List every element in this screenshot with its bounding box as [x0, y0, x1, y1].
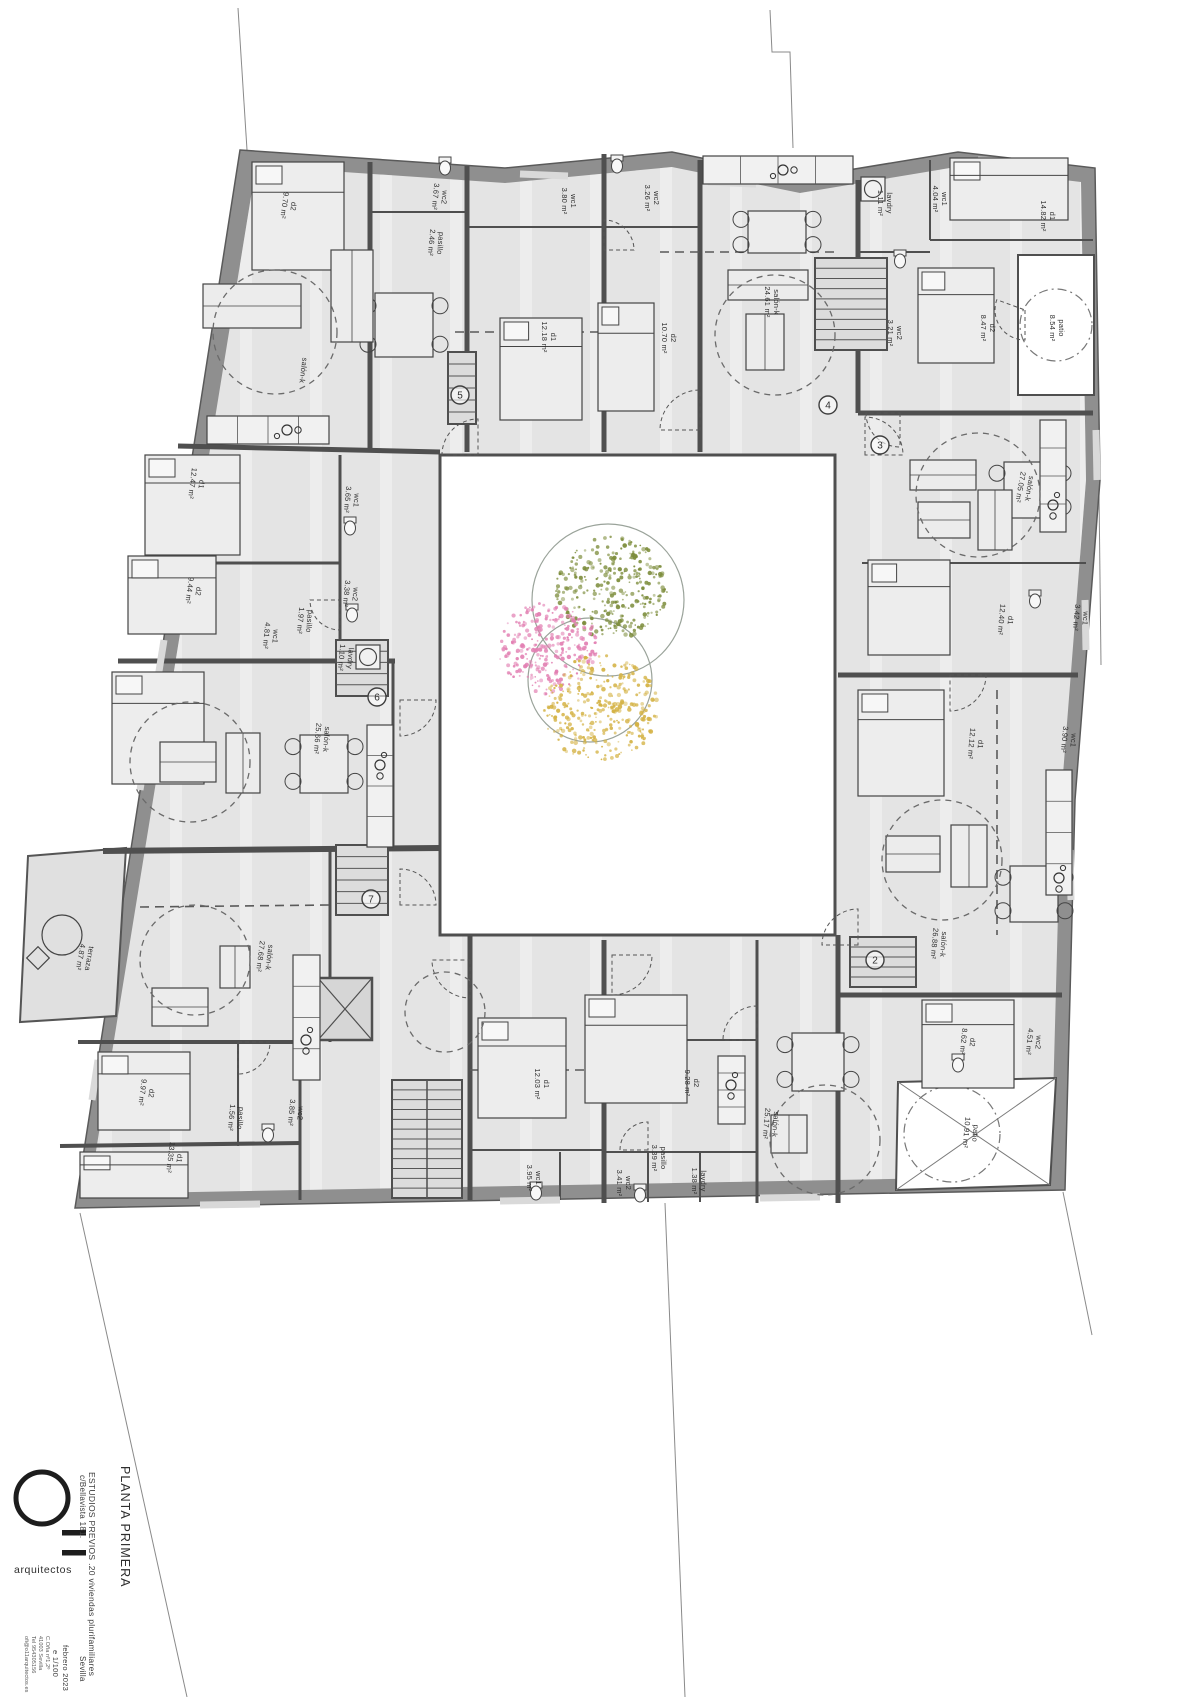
svg-text:3.95 m²: 3.95 m²: [525, 1165, 534, 1192]
bed: [858, 690, 944, 796]
room-label: salón-k25.17 m²: [761, 1108, 782, 1141]
toilet: [344, 517, 356, 535]
toilet: [634, 1184, 646, 1202]
svg-text:5: 5: [457, 391, 463, 402]
sofa: [886, 836, 940, 872]
svg-text:4: 4: [825, 401, 831, 412]
bed: [598, 303, 654, 411]
svg-text:lavdry: lavdry: [699, 1170, 708, 1191]
svg-text:wc1: wc1: [940, 191, 949, 206]
svg-text:24.61 m²: 24.61 m²: [763, 286, 772, 317]
svg-text:1.11 m²: 1.11 m²: [876, 190, 885, 217]
kitchen-counter: [207, 416, 329, 444]
room-label: salón-k27.68 m²: [254, 940, 276, 973]
drawing-title: PLANTA PRIMERA: [118, 1466, 132, 1587]
sofa: [918, 502, 970, 538]
svg-text:3.41 m²: 3.41 m²: [615, 1170, 624, 1197]
svg-text:8.47 m²: 8.47 m²: [979, 315, 988, 342]
svg-text:d2: d2: [988, 324, 997, 333]
svg-text:12.03 m²: 12.03 m²: [533, 1068, 542, 1099]
svg-text:4.04 m²: 4.04 m²: [931, 186, 940, 213]
toilet: [611, 155, 623, 173]
sofa: [203, 284, 301, 328]
kitchen-counter: [293, 955, 320, 1080]
drawing-date: febrero 2023: [61, 1645, 70, 1691]
svg-text:wc1: wc1: [569, 193, 578, 208]
unit-number-badge: 5: [451, 386, 469, 404]
sofa: [910, 460, 976, 490]
project-title: ESTUDIOS PREVIOS .20 viviendas plurifami…: [87, 1472, 97, 1676]
office-address-line: C.Oña nº1,2º: [44, 1636, 50, 1669]
svg-text:d2: d2: [669, 334, 678, 343]
bed: [868, 560, 950, 655]
sofa: [160, 742, 216, 782]
bed: [478, 1018, 566, 1118]
svg-text:3.21 m²: 3.21 m²: [886, 320, 895, 347]
logo-subtitle: arquitectos: [14, 1564, 72, 1576]
unit-number-badge: 3: [871, 436, 889, 454]
svg-text:wc2: wc2: [652, 190, 661, 205]
sofa: [978, 490, 1012, 550]
svg-text:d1: d1: [549, 333, 558, 342]
office-city-line: 41003 Sevilla: [37, 1636, 43, 1670]
svg-text:3: 3: [877, 441, 883, 452]
floor-plan-sheet: d29.70 m²wc23.67 m²pasillo2.46 m²salón-k…: [0, 0, 1200, 1697]
kitchen-counter: [367, 725, 393, 847]
bed: [585, 995, 687, 1103]
staircase: [336, 845, 388, 915]
room-label: salón-k26.88 m²: [929, 928, 950, 961]
svg-text:wc2: wc2: [895, 325, 904, 340]
svg-text:2: 2: [872, 956, 878, 967]
sofa: [951, 825, 987, 887]
svg-text:lavdry: lavdry: [885, 192, 894, 213]
drawing-scale: e 1/100: [51, 1650, 60, 1677]
svg-text:6: 6: [374, 693, 380, 704]
sofa: [226, 733, 260, 793]
sofa: [152, 988, 208, 1026]
elevator-shaft: [318, 978, 372, 1040]
sofa: [746, 314, 784, 370]
kitchen-counter: [703, 156, 853, 184]
kitchen-counter: [1040, 420, 1066, 532]
svg-text:wc2: wc2: [624, 1175, 633, 1190]
floor-plan-drawing: d29.70 m²wc23.67 m²pasillo2.46 m²salón-k…: [0, 0, 1200, 1697]
office-phone-line: Tel 954305156: [30, 1636, 36, 1673]
svg-text:14.82 m²: 14.82 m²: [1039, 200, 1048, 231]
svg-text:salón-k: salón-k: [772, 289, 781, 315]
unit-number-badge: 4: [819, 396, 837, 414]
room-label: pasillo3.39 m²: [650, 1145, 668, 1172]
washing-machine: [356, 645, 380, 669]
toilet: [1029, 590, 1041, 608]
svg-text:3.26 m²: 3.26 m²: [643, 185, 652, 212]
project-city: Sevilla: [78, 1656, 87, 1682]
bed: [252, 162, 344, 270]
svg-text:8.54 m²: 8.54 m²: [1048, 315, 1057, 342]
svg-text:patio: patio: [1057, 319, 1066, 336]
svg-text:9.28 m²: 9.28 m²: [683, 1070, 692, 1097]
project-address: c/Bellavista 181.: [78, 1475, 87, 1538]
toilet: [894, 250, 906, 268]
svg-text:wc1: wc1: [534, 1170, 543, 1185]
room-label: pasillo1.97 m²: [295, 607, 315, 636]
room-label: pasillo2.46 m²: [426, 229, 446, 258]
terraza-balcony: [20, 848, 126, 1022]
room-label: pasillo1.56 m²: [226, 1104, 246, 1133]
office-mail-line: ofi@o11arquitectos.es: [23, 1636, 29, 1693]
room-label: lavdry1.10 m²: [336, 644, 356, 673]
svg-text:3.80 m²: 3.80 m²: [560, 188, 569, 215]
svg-text:1.38 m²: 1.38 m²: [690, 1168, 699, 1195]
unit-number-badge: 2: [866, 951, 884, 969]
kitchen-counter: [1046, 770, 1072, 895]
room-label: salón-k24.61 m²: [763, 286, 781, 317]
svg-text:d2: d2: [692, 1079, 701, 1088]
toilet: [952, 1054, 964, 1072]
room-label: salón-k25.66 m²: [312, 723, 333, 756]
room-label: lavdry1.11 m²: [876, 190, 894, 217]
svg-text:3.39 m²: 3.39 m²: [650, 1145, 659, 1172]
svg-text:d1: d1: [1048, 212, 1057, 221]
svg-text:10.70 m²: 10.70 m²: [660, 322, 669, 353]
unit-number-badge: 6: [368, 688, 386, 706]
toilet: [439, 157, 451, 175]
unit-number-badge: 7: [362, 890, 380, 908]
svg-text:12.18 m²: 12.18 m²: [540, 321, 549, 352]
toilet: [262, 1124, 274, 1142]
kitchen-counter: [718, 1056, 745, 1124]
room-label: lavdry1.38 m²: [690, 1168, 708, 1195]
svg-text:pasillo: pasillo: [659, 1147, 668, 1170]
svg-text:7: 7: [368, 895, 374, 906]
staircase: [392, 1080, 462, 1198]
svg-text:d1: d1: [542, 1080, 551, 1089]
